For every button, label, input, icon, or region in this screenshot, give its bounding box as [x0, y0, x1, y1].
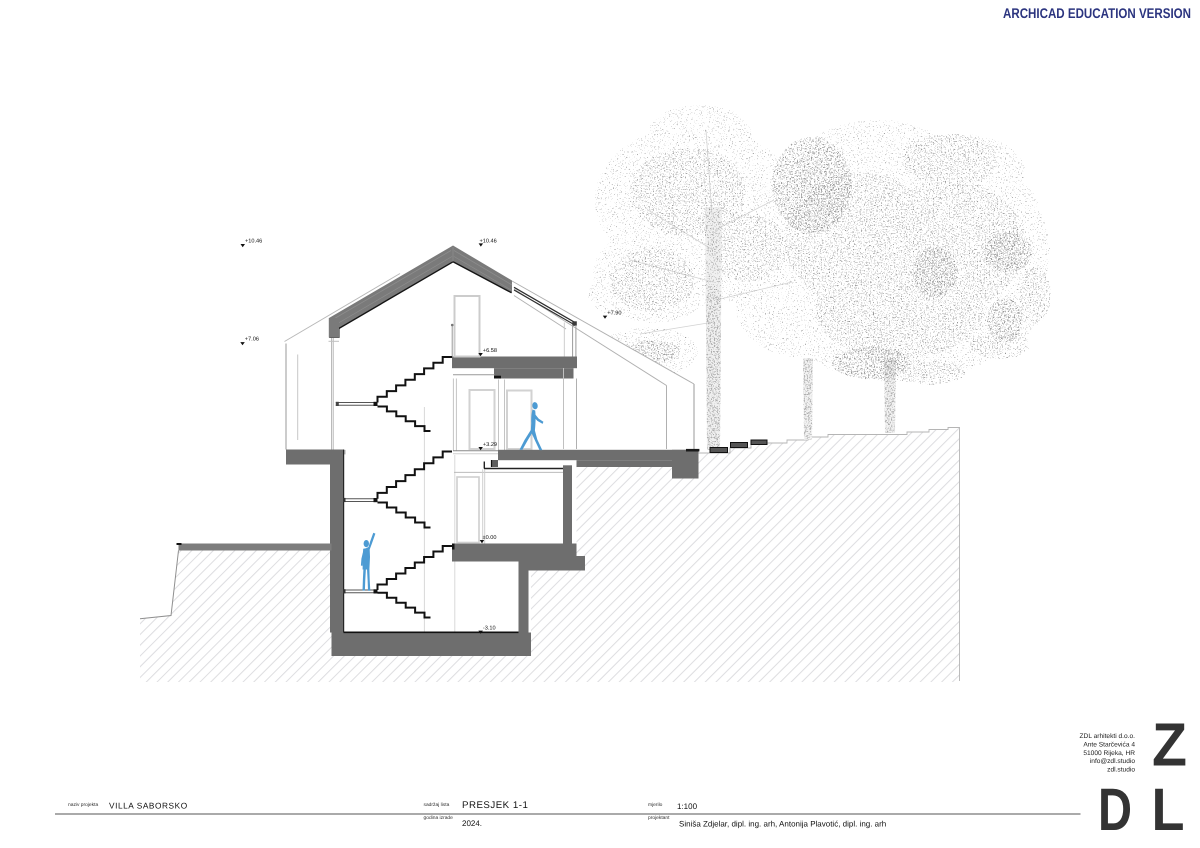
svg-text:1:100: 1:100: [677, 802, 698, 811]
svg-text:51000 Rijeka, HR: 51000 Rijeka, HR: [1083, 750, 1135, 757]
svg-text:±0.00: ±0.00: [483, 535, 497, 541]
svg-text:+7.90: +7.90: [607, 310, 621, 316]
svg-text:+3.29: +3.29: [483, 442, 497, 448]
svg-text:+10.46: +10.46: [245, 239, 262, 245]
svg-text:Siniša Zdjelar, dipl. ing. arh: Siniša Zdjelar, dipl. ing. arh, Antonija…: [679, 820, 886, 829]
svg-text:naziv projekta: naziv projekta: [68, 802, 98, 808]
svg-text:projektant: projektant: [648, 815, 670, 821]
svg-text:Ante Starčevića 4: Ante Starčevića 4: [1083, 741, 1135, 748]
svg-text:godina izrade: godina izrade: [424, 815, 454, 821]
svg-text:mjerilo: mjerilo: [648, 802, 663, 808]
svg-text:sadržaj lista: sadržaj lista: [424, 802, 450, 808]
svg-text:zdl.studio: zdl.studio: [1107, 767, 1135, 774]
svg-text:Z: Z: [1152, 711, 1187, 779]
svg-text:2024.: 2024.: [462, 819, 482, 828]
svg-text:D: D: [1098, 776, 1132, 843]
svg-text:VILLA SABORSKO: VILLA SABORSKO: [109, 801, 188, 811]
svg-text:L: L: [1152, 776, 1185, 843]
svg-text:-3.10: -3.10: [483, 625, 496, 631]
svg-text:ZDL arhitekti d.o.o.: ZDL arhitekti d.o.o.: [1080, 733, 1136, 740]
svg-text:+7.06: +7.06: [245, 337, 259, 343]
svg-text:ARCHICAD EDUCATION VERSION: ARCHICAD EDUCATION VERSION: [1003, 5, 1191, 21]
svg-text:info@zdl.studio: info@zdl.studio: [1090, 758, 1136, 765]
svg-text:+6.58: +6.58: [483, 348, 497, 354]
svg-text:+10.46: +10.46: [480, 239, 497, 245]
svg-text:PRESJEK 1-1: PRESJEK 1-1: [462, 800, 528, 811]
